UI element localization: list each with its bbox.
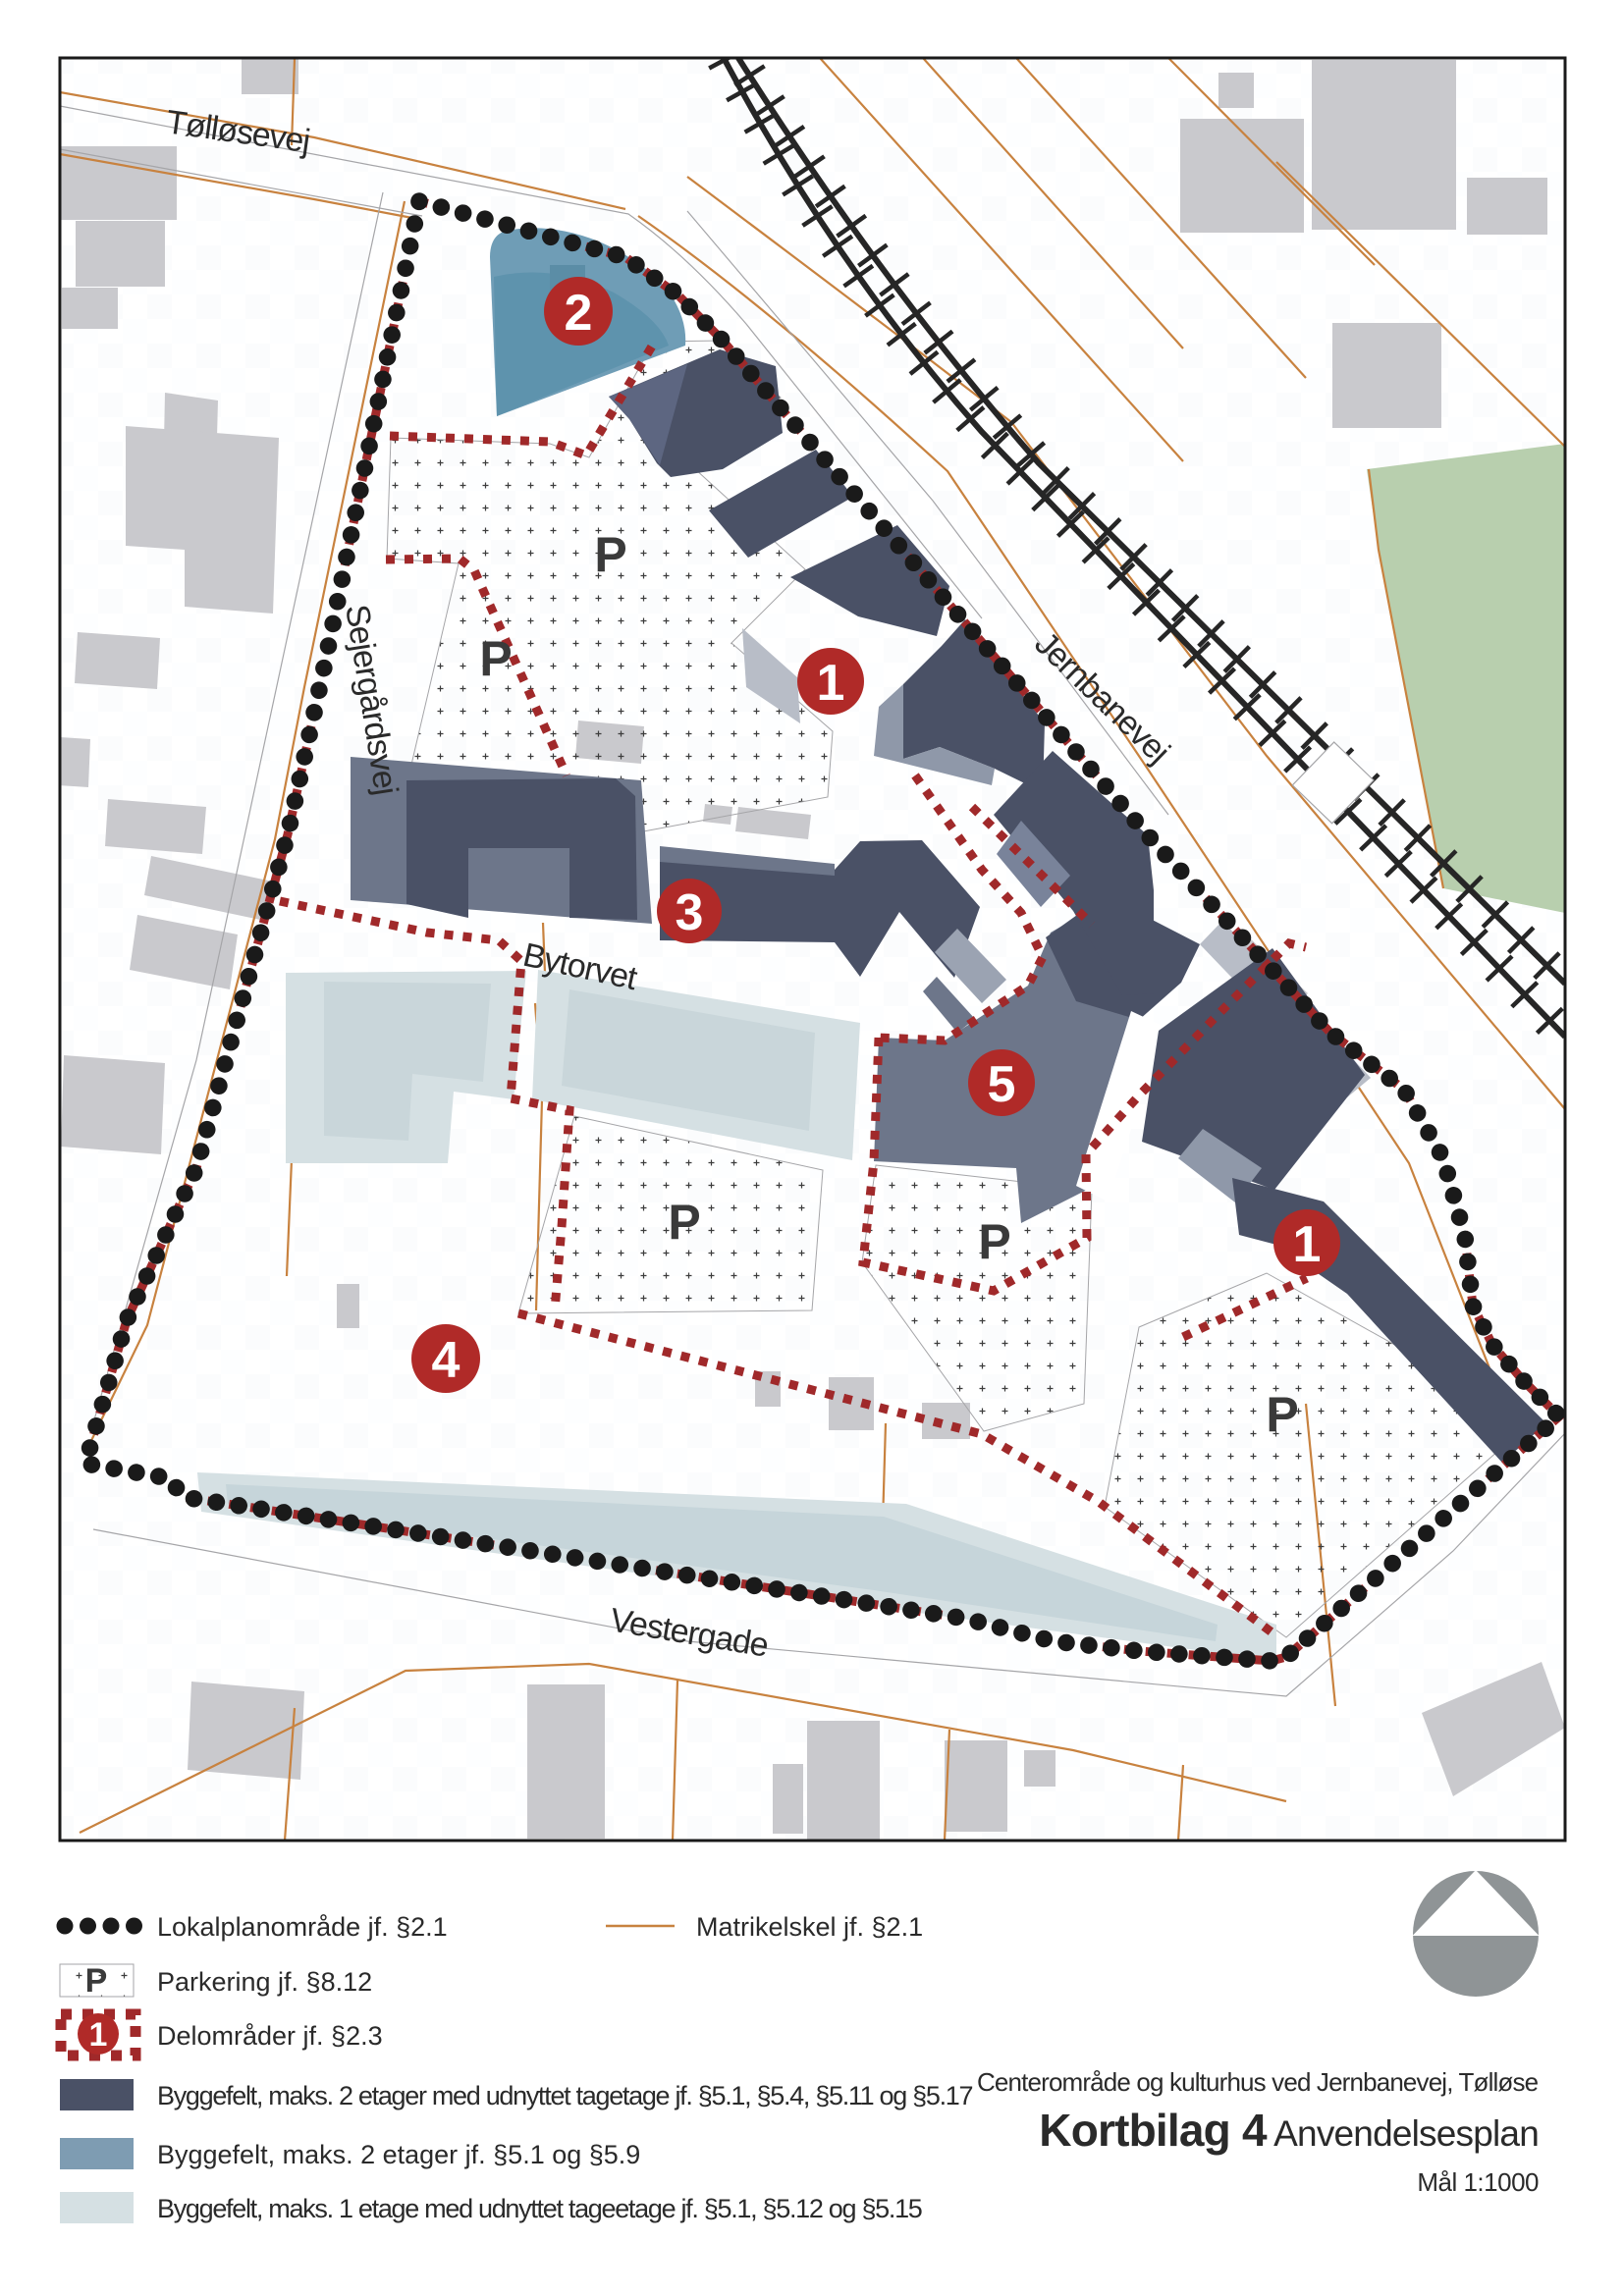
svg-text:Matrikelskel jf. §2.1: Matrikelskel jf. §2.1 (696, 1912, 923, 1942)
svg-text:P: P (594, 527, 626, 582)
svg-text:Delområder jf. §2.3: Delområder jf. §2.3 (157, 2021, 383, 2051)
svg-text:Centerområde og kulturhus ved: Centerområde og kulturhus ved Jernbaneve… (977, 2067, 1539, 2097)
svg-text:3: 3 (676, 884, 704, 941)
svg-text:P: P (668, 1195, 700, 1250)
svg-text:Lokalplanområde jf. §2.1: Lokalplanområde jf. §2.1 (157, 1912, 448, 1942)
svg-text:2: 2 (565, 285, 593, 342)
svg-text:1: 1 (89, 2016, 108, 2054)
svg-text:1: 1 (1293, 1216, 1322, 1273)
svg-text:P: P (85, 1962, 108, 2000)
svg-text:P: P (1266, 1387, 1298, 1442)
svg-text:P: P (479, 631, 512, 686)
svg-text:Byggefelt, maks. 1 etage med u: Byggefelt, maks. 1 etage med udnyttet ta… (157, 2194, 922, 2223)
svg-text:Mål 1:1000: Mål 1:1000 (1417, 2167, 1539, 2197)
svg-text:5: 5 (988, 1056, 1016, 1113)
svg-text:P: P (978, 1214, 1010, 1269)
svg-text:4: 4 (432, 1332, 460, 1389)
svg-text:Parkering jf. §8.12: Parkering jf. §8.12 (157, 1967, 372, 1997)
svg-text:Byggefelt, maks. 2 etager jf.: Byggefelt, maks. 2 etager jf. §5.1 og §5… (157, 2140, 640, 2169)
svg-text:Byggefelt, maks. 2 etager med: Byggefelt, maks. 2 etager med udnyttet t… (157, 2081, 973, 2110)
svg-text:1: 1 (817, 655, 845, 712)
